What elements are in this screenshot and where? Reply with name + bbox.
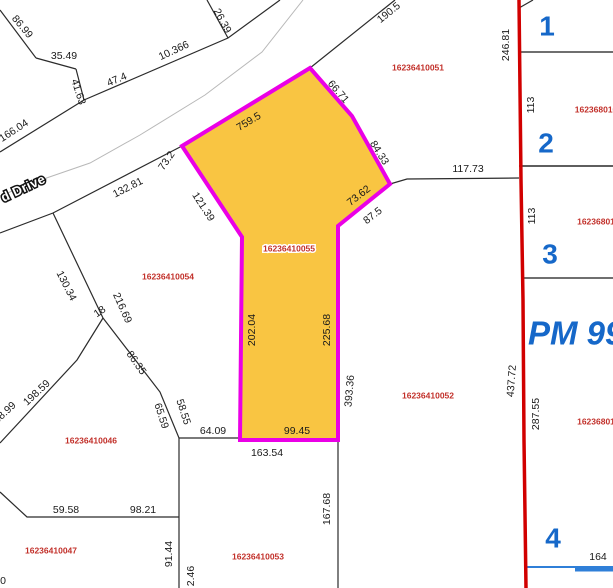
dimension-label: 287.55 [530, 398, 542, 430]
dimension-label: 91.44 [163, 541, 175, 567]
dimension-label: 113 [525, 96, 537, 113]
dimension-label: 393.36 [342, 374, 357, 407]
parcel-id: 16236410047 [25, 545, 77, 555]
dimension-label: 68.99 [0, 399, 19, 426]
dimension-label: 98.21 [130, 504, 156, 516]
lot-line [519, 0, 533, 8]
dimension-label: 166.04 [0, 117, 31, 145]
dimension-label: 47.4 [105, 70, 129, 89]
dimension-label: 130.34 [54, 269, 79, 303]
dimension-label: 2.46 [185, 566, 197, 587]
map-canvas: 86.9935.4941.6347.410.36626.39190.5166.0… [0, 0, 613, 588]
parcel-map: 86.9935.4941.6347.410.36626.39190.5166.0… [0, 0, 613, 588]
dimension-label: 18 [92, 303, 109, 320]
dimension-label: 437.72 [505, 364, 519, 397]
dimension-label: 225.68 [321, 314, 333, 346]
dimension-label: 113 [526, 207, 538, 224]
dimension-label: 35.49 [51, 50, 77, 62]
dimension-label: 246.81 [500, 29, 512, 61]
dimension-label: 10.366 [157, 39, 191, 64]
parcel-id: 16236410046 [65, 435, 117, 445]
dimension-label: 73.2 [156, 149, 178, 173]
lot-number: 3 [542, 238, 558, 269]
lot-number: 1 [539, 10, 555, 41]
dimension-label: 216.69 [110, 291, 134, 325]
dimension-label: 65.59 [151, 402, 171, 431]
lot-number: 2 [538, 127, 554, 158]
parcel-id: 16236410053 [232, 551, 284, 561]
dimension-label: 58.55 [173, 398, 193, 427]
parcel-id: 162368010 [575, 104, 613, 114]
dimension-label: 87.5 [361, 205, 385, 227]
lot-line [0, 318, 103, 443]
dimension-label: 59.58 [53, 504, 79, 516]
selected-parcel[interactable] [182, 68, 390, 440]
dimension-label: 99.45 [284, 425, 310, 437]
lot-line [53, 213, 103, 318]
lot-number: 4 [545, 522, 561, 553]
dimension-label: 26.39 [211, 6, 234, 35]
dimension-label: 167.68 [321, 493, 333, 525]
pm-label: PM 99 [528, 315, 613, 352]
dimension-label: 190.5 [375, 0, 403, 26]
parcel-id: 16236801 [577, 216, 613, 226]
dimension-label: 0 [0, 575, 6, 587]
road-name-label: d Drive [0, 171, 48, 205]
parcel-id: 16236410054 [142, 271, 194, 281]
dimension-label: 163.54 [251, 447, 283, 459]
dimension-label: 132.81 [111, 175, 145, 200]
parcel-id: 16236410051 [392, 62, 444, 72]
dimension-label: 64.09 [200, 425, 226, 437]
dimension-label: 41.63 [68, 78, 88, 107]
dimension-label: 164 [589, 551, 607, 563]
pm-boundary-line [519, 0, 526, 588]
parcel-id: 16236410055 [263, 243, 315, 253]
dimension-label: 202.04 [246, 314, 258, 346]
dimension-label: 117.73 [452, 163, 483, 175]
lot-line [390, 178, 519, 184]
parcel-id: 16236410052 [402, 390, 454, 400]
parcel-id: 16236801 [577, 416, 613, 426]
